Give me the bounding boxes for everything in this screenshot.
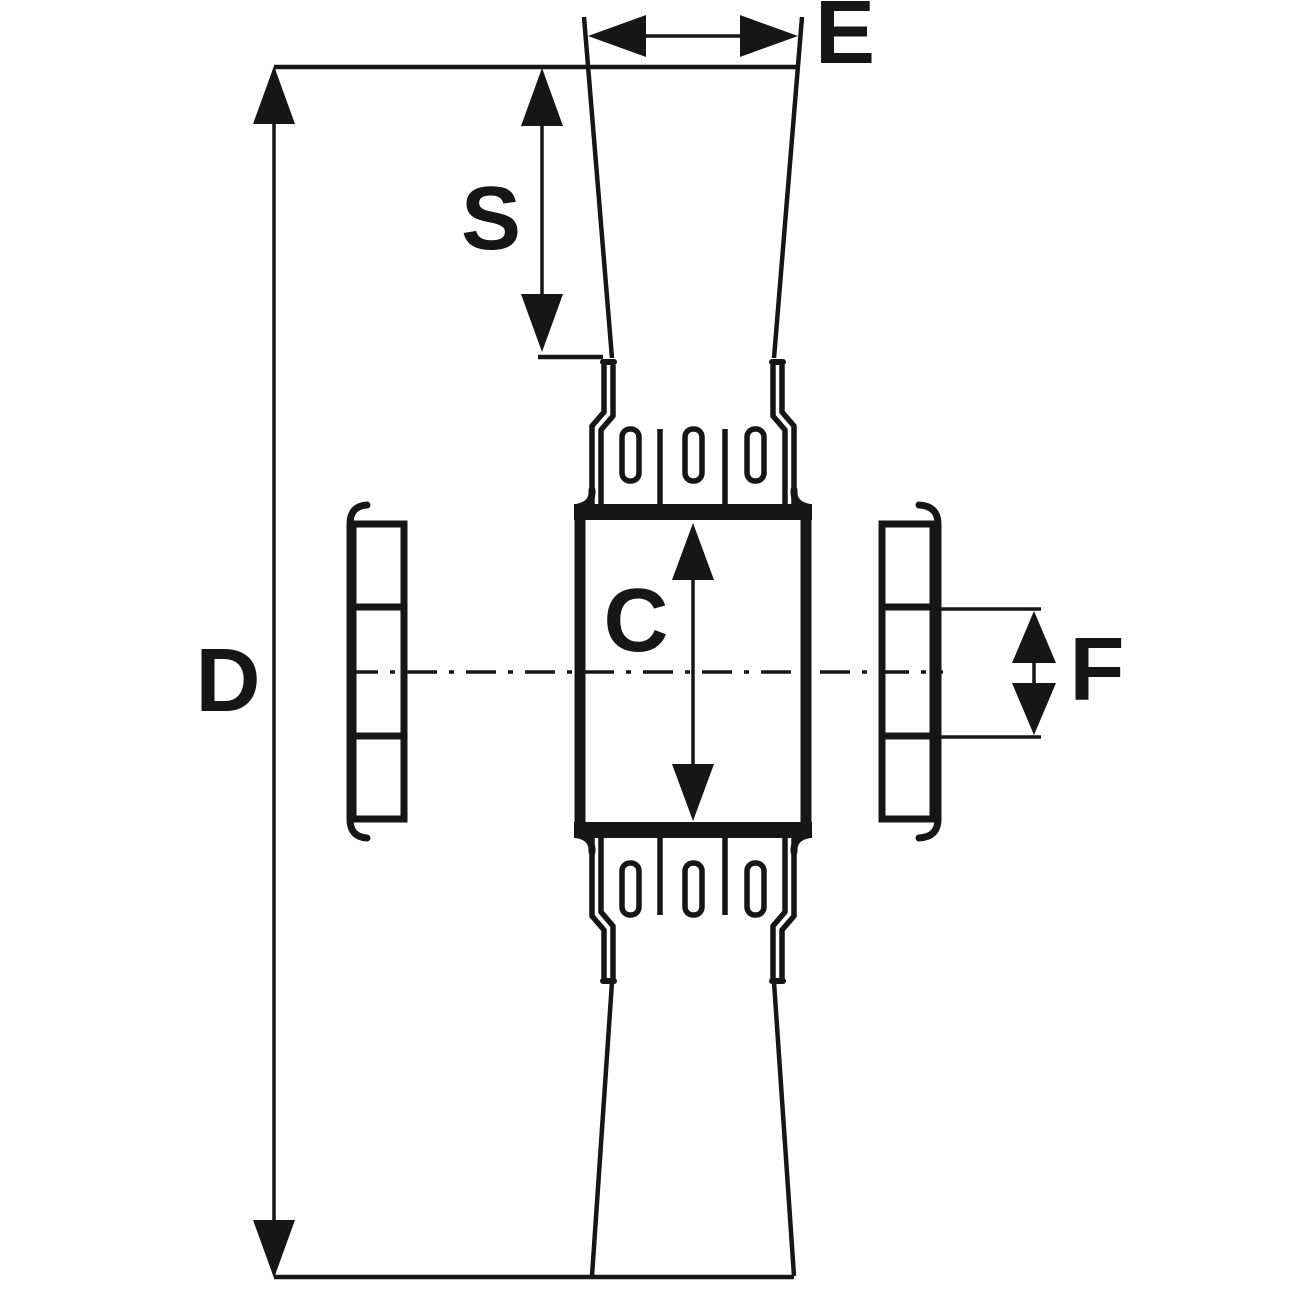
dim-c-label: C [604,571,669,671]
dim-s-label: S [461,169,521,269]
arrowhead-right-icon [740,15,798,57]
grip-slot [622,429,639,481]
body-fillet [794,490,808,507]
arrowhead-down-icon [1012,683,1056,735]
arrowhead-down-icon [672,764,714,821]
grip-slot [747,863,764,915]
grip-slot [685,429,702,481]
top-socket [592,362,794,507]
arrowhead-up-icon [1012,611,1056,663]
arrowhead-up-icon [672,523,714,580]
dim-d-label: D [196,631,261,731]
bottom-pipe [592,982,794,1276]
dimension-S: S [461,68,603,357]
dimension-F: F [938,609,1124,737]
arrowhead-down-icon [253,1220,295,1278]
dimension-E: E [588,0,875,83]
dim-e-label: E [815,0,875,83]
grip-slot [747,429,764,481]
arrowhead-up-icon [521,68,563,126]
technical-drawing-page: D E S C F [0,0,1300,1300]
grip-slot [622,863,639,915]
dim-f-label: F [1070,620,1125,720]
body-fillet [578,490,592,507]
bottom-socket [592,836,794,981]
arrowhead-up-icon [253,66,295,124]
grip-slot [685,863,702,915]
bottom-pipe-left-wall [592,982,612,1276]
arrowhead-down-icon [521,294,563,352]
bottom-pipe-right-wall [774,982,794,1276]
arrowhead-left-icon [588,15,646,57]
pipe-coupling-dimension-drawing: D E S C F [0,0,1300,1300]
